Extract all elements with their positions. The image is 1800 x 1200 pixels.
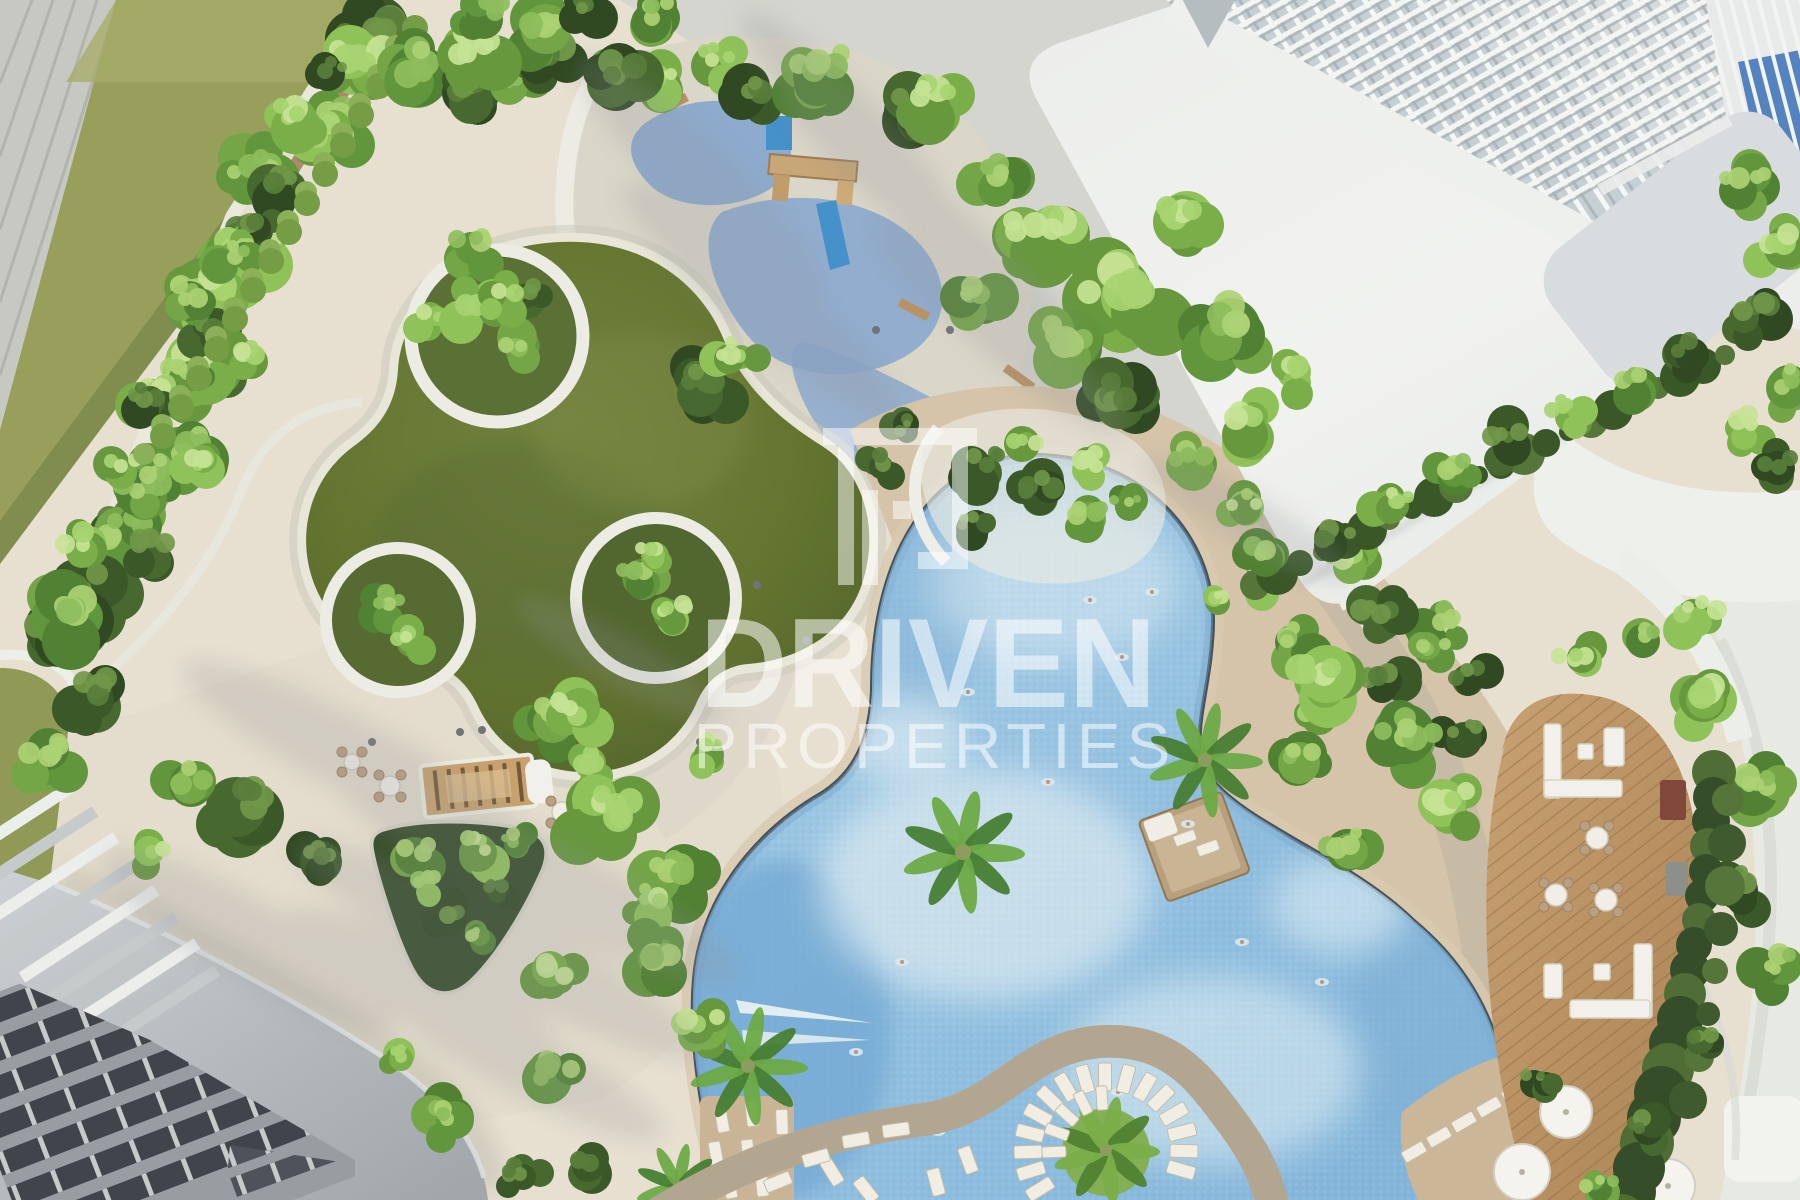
svg-text:PROPERTIES: PROPERTIES bbox=[694, 710, 1177, 782]
